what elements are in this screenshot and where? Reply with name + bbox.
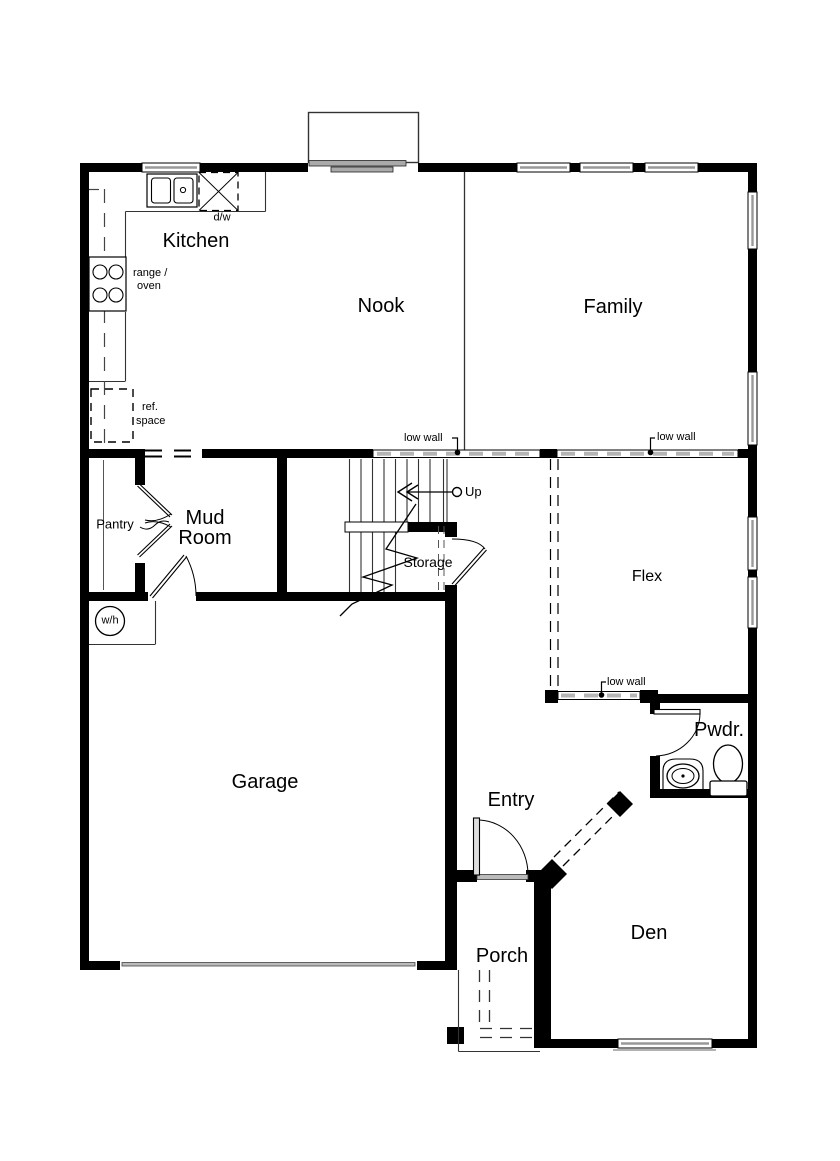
- range-oven: [89, 257, 126, 311]
- powder-sink: [663, 759, 703, 789]
- nook-bumpout-outline: [309, 113, 419, 163]
- den-window: [613, 1039, 716, 1050]
- room-label-kitchen: Kitchen: [163, 231, 230, 251]
- low-wall-dots: [455, 450, 654, 698]
- room-label-storage: Storage: [403, 555, 452, 569]
- flex-window-2: [748, 577, 757, 628]
- room-label-powder: Pwdr.: [694, 720, 744, 740]
- kitchen-window: [142, 163, 200, 172]
- family-window-top-2: [580, 163, 633, 172]
- angled-wall-posts: [537, 791, 633, 889]
- exterior-walls: [80, 163, 757, 1048]
- low-wall-label-flex-top: low wall: [657, 432, 696, 443]
- low-wall-label-flex-bottom: low wall: [607, 677, 646, 688]
- family-window-top-1: [517, 163, 570, 172]
- flex-opening-dashed: [551, 459, 559, 689]
- room-label-entry: Entry: [488, 790, 535, 810]
- garage-door: [122, 963, 415, 967]
- kitchen-hall-opening: [145, 449, 202, 458]
- pantry-doors: [138, 484, 173, 557]
- pantry-leader: [140, 521, 169, 529]
- room-label-flex: Flex: [632, 569, 662, 585]
- ref-space-label-line2: space: [136, 416, 165, 427]
- floorplan: Kitchen Nook Family Pantry Mud Room Stor…: [0, 0, 840, 1161]
- room-label-mud-room: Mud Room: [178, 508, 231, 548]
- room-label-family: Family: [584, 297, 643, 317]
- sliding-door: [309, 161, 406, 173]
- room-label-porch: Porch: [476, 946, 528, 966]
- kitchen-sink: [147, 174, 197, 207]
- dishwasher: [199, 173, 238, 211]
- water-heater: [89, 601, 156, 645]
- mud-room-line1: Mud: [178, 508, 231, 528]
- toilet: [710, 745, 747, 796]
- floorplan-drawing: [0, 0, 840, 1161]
- room-label-pantry: Pantry: [96, 518, 134, 531]
- porch-outline: [459, 970, 541, 1052]
- low-wall-flex-top: [557, 450, 738, 458]
- storage-door: [452, 539, 487, 586]
- family-window-right-1: [748, 192, 757, 249]
- family-window-top-3: [645, 163, 698, 172]
- range-label-line1: range /: [133, 268, 167, 279]
- flex-window-1: [748, 517, 757, 570]
- low-wall-label-nook: low wall: [404, 433, 443, 444]
- mud-room-line2: Room: [178, 528, 231, 548]
- mud-room-door: [150, 555, 196, 598]
- range-label-line2: oven: [137, 281, 161, 292]
- water-heater-label: w/h: [101, 616, 118, 627]
- refrigerator-space: [91, 389, 133, 442]
- room-label-den: Den: [631, 923, 668, 943]
- family-window-right-2: [748, 372, 757, 445]
- ref-space-label-line1: ref.: [142, 402, 158, 413]
- room-label-garage: Garage: [232, 772, 299, 792]
- low-wall-leaders: [452, 438, 655, 693]
- dishwasher-label: d/w: [213, 213, 230, 224]
- up-label: Up: [465, 485, 482, 498]
- room-label-nook: Nook: [358, 296, 405, 316]
- front-door: [474, 818, 529, 880]
